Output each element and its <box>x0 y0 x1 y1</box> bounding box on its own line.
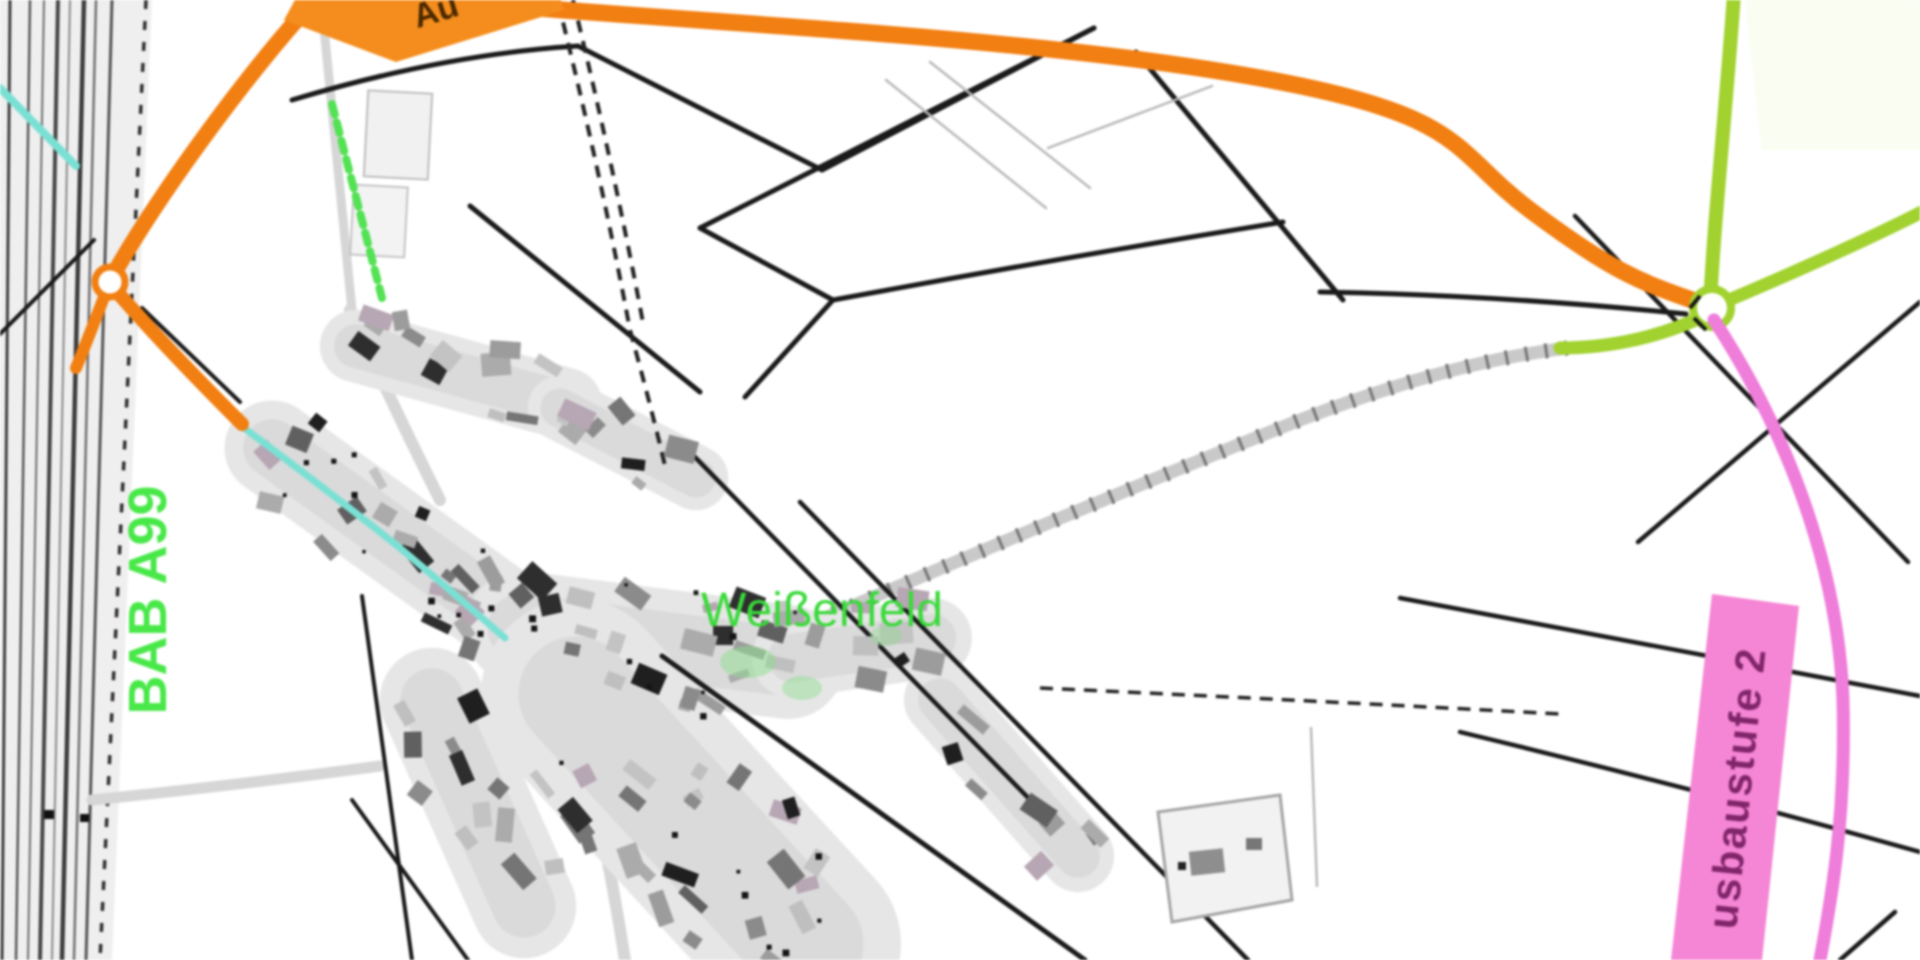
building <box>531 626 537 632</box>
building <box>404 732 422 758</box>
building <box>478 631 484 637</box>
motorway-interchange-circle <box>95 267 125 297</box>
orange-route-highlight <box>76 8 1692 424</box>
building <box>489 575 502 592</box>
building <box>362 550 365 553</box>
building <box>331 459 336 464</box>
building <box>544 858 565 875</box>
building <box>701 690 705 694</box>
building <box>817 919 821 923</box>
building <box>392 310 411 332</box>
building <box>495 807 515 843</box>
farmstead-outline <box>1158 795 1292 922</box>
building <box>782 950 789 957</box>
building <box>559 761 563 765</box>
map-viewport: Au usbaustufe 2 BAB A99 Weißenfeld <box>0 0 1920 960</box>
building <box>481 549 485 553</box>
building <box>437 614 441 618</box>
field-tints <box>1745 0 1920 150</box>
building <box>304 460 309 465</box>
building <box>472 802 492 828</box>
building <box>488 605 494 611</box>
building <box>352 452 357 457</box>
building <box>646 684 652 690</box>
building <box>529 615 536 622</box>
motorway-label: BAB A99 <box>118 485 178 714</box>
building <box>736 870 740 874</box>
building <box>694 590 699 595</box>
village-label: Weißenfeld <box>701 584 943 637</box>
building <box>624 583 627 586</box>
building <box>672 832 678 838</box>
building <box>742 892 749 899</box>
building <box>428 598 435 605</box>
building <box>767 945 772 950</box>
site-plan-map: Au usbaustufe 2 BAB A99 Weißenfeld <box>0 0 1920 960</box>
building <box>816 853 822 859</box>
building <box>283 493 287 497</box>
building <box>456 613 461 618</box>
building <box>351 492 357 498</box>
motorway-corridor <box>0 0 152 960</box>
building <box>700 713 706 719</box>
building <box>489 340 521 359</box>
building <box>627 659 632 664</box>
